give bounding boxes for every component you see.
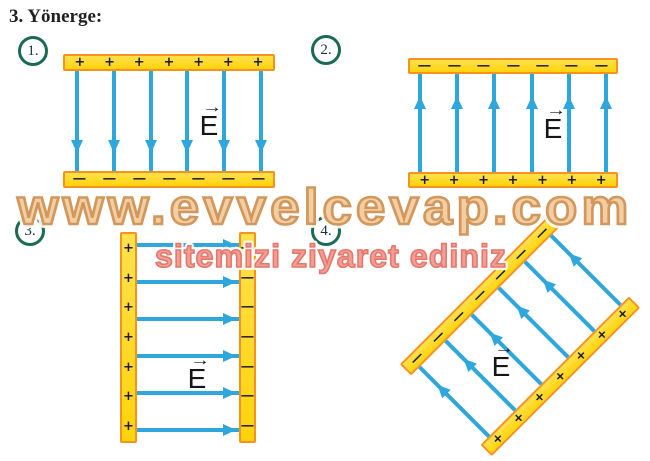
- minus-sign: −: [532, 223, 553, 244]
- page-title: 3. Yönerge:: [9, 6, 102, 28]
- plus-sign: +: [419, 174, 430, 187]
- diagram-2-number-badge: 2.: [311, 35, 341, 65]
- field-line: [530, 74, 534, 172]
- field-arrowhead: [71, 140, 83, 153]
- field-arrowhead: [488, 96, 500, 109]
- plus-sign: +: [566, 174, 577, 187]
- plus-sign: +: [489, 430, 506, 447]
- diagram-4-number: 4.: [320, 223, 331, 240]
- vector-arrow-icon: →: [546, 106, 566, 115]
- charged-plate: +++++++: [120, 232, 137, 443]
- field-line: [149, 71, 153, 171]
- charged-plate: +++++++: [408, 172, 618, 188]
- diagram-2-number: 2.: [320, 42, 331, 59]
- field-line: [455, 74, 459, 172]
- minus-sign: −: [101, 173, 117, 186]
- field-arrowhead: [539, 276, 557, 294]
- charged-plate: −−−−−−−: [63, 171, 275, 188]
- minus-sign: −: [239, 272, 255, 285]
- e-field-label-3: → E: [182, 356, 212, 394]
- minus-sign: −: [564, 60, 580, 73]
- charged-plate: −−−−−−−: [239, 232, 256, 443]
- field-line: [604, 74, 608, 172]
- plus-sign: +: [104, 56, 115, 69]
- field-line: [259, 71, 263, 171]
- field-arrowhead: [223, 276, 236, 288]
- minus-sign: −: [505, 60, 521, 73]
- field-arrowhead: [414, 96, 426, 109]
- minus-sign: −: [446, 60, 462, 73]
- plus-sign: +: [164, 56, 175, 69]
- plus-sign: +: [531, 389, 548, 406]
- minus-sign: −: [407, 348, 428, 369]
- minus-sign: −: [239, 420, 255, 433]
- field-arrowhead: [108, 140, 120, 153]
- field-arrowhead: [255, 140, 267, 153]
- minus-sign: −: [131, 173, 147, 186]
- e-field-label-2: → E: [538, 106, 568, 144]
- plus-sign: +: [123, 331, 134, 344]
- plus-sign: +: [573, 347, 590, 364]
- capacitor-diagram-1: +++++++−−−−−−−: [63, 54, 275, 188]
- charged-plate: −−−−−−−: [408, 58, 618, 74]
- plus-sign: +: [123, 420, 134, 433]
- field-line: [137, 317, 239, 321]
- field-line: [492, 74, 496, 172]
- plus-sign: +: [552, 368, 569, 385]
- field-arrowhead: [223, 239, 236, 251]
- minus-sign: −: [475, 60, 491, 73]
- field-arrowhead: [433, 381, 451, 399]
- plus-sign: +: [593, 326, 610, 343]
- minus-sign: −: [448, 306, 469, 327]
- plus-sign: +: [123, 361, 134, 374]
- minus-sign: −: [239, 331, 255, 344]
- e-field-letter: E: [544, 115, 563, 144]
- field-arrowhead: [451, 96, 463, 109]
- figure-page: 3. Yönerge: 1. 2. 3. 4. +++++++−−−−−−− −…: [0, 0, 650, 461]
- plus-sign: +: [253, 56, 264, 69]
- plus-sign: +: [478, 174, 489, 187]
- minus-sign: −: [490, 265, 511, 286]
- field-line: [75, 71, 79, 171]
- field-line: [137, 428, 239, 432]
- vector-arrow-icon: →: [202, 103, 222, 112]
- field-line: [137, 243, 239, 247]
- plus-sign: +: [74, 56, 85, 69]
- plus-sign: +: [537, 174, 548, 187]
- charged-plate: −−−−−−−: [400, 216, 560, 376]
- diagram-3-number-badge: 3.: [15, 216, 45, 246]
- minus-sign: −: [417, 60, 433, 73]
- plus-sign: +: [123, 301, 134, 314]
- field-line: [418, 74, 422, 172]
- minus-sign: −: [593, 60, 609, 73]
- diagram-3-number: 3.: [24, 223, 35, 240]
- plus-sign: +: [223, 56, 234, 69]
- field-arrowhead: [223, 387, 236, 399]
- plus-sign: +: [596, 174, 607, 187]
- minus-sign: −: [161, 173, 177, 186]
- field-arrowhead: [460, 355, 478, 373]
- plus-sign: +: [510, 409, 527, 426]
- plus-sign: +: [123, 390, 134, 403]
- field-arrowhead: [181, 140, 193, 153]
- plus-sign: +: [449, 174, 460, 187]
- vector-arrow-icon: →: [494, 344, 514, 353]
- minus-sign: −: [220, 173, 236, 186]
- minus-sign: −: [250, 173, 266, 186]
- vector-arrow-icon: →: [190, 356, 210, 365]
- capacitor-diagram-2: −−−−−−−+++++++: [408, 58, 618, 188]
- field-arrowhead: [223, 313, 236, 325]
- diagram-4-number-badge: 4.: [311, 216, 341, 246]
- field-arrowhead: [600, 96, 612, 109]
- plus-sign: +: [614, 305, 631, 322]
- plus-sign: +: [123, 242, 134, 255]
- field-arrowhead: [223, 424, 236, 436]
- field-arrowhead: [565, 249, 583, 267]
- minus-sign: −: [534, 60, 550, 73]
- field-line: [112, 71, 116, 171]
- plus-sign: +: [508, 174, 519, 187]
- e-field-label-4: → E: [486, 344, 516, 382]
- minus-sign: −: [239, 361, 255, 374]
- field-arrowhead: [145, 140, 157, 153]
- e-field-letter: E: [188, 365, 207, 394]
- e-field-letter: E: [200, 112, 219, 141]
- capacitor-diagram-3: +++++++−−−−−−−: [120, 232, 256, 443]
- charged-plate: +++++++: [63, 54, 275, 71]
- minus-sign: −: [239, 301, 255, 314]
- minus-sign: −: [428, 327, 449, 348]
- e-field-label-1: → E: [194, 103, 224, 141]
- minus-sign: −: [511, 244, 532, 265]
- minus-sign: −: [469, 285, 490, 306]
- capacitor-diagram-4: −−−−−−−+++++++: [400, 216, 640, 456]
- field-arrowhead: [512, 302, 530, 320]
- field-arrowhead: [526, 96, 538, 109]
- field-arrowhead: [218, 140, 230, 153]
- minus-sign: −: [239, 390, 255, 403]
- field-arrowhead: [223, 350, 236, 362]
- minus-sign: −: [72, 173, 88, 186]
- e-field-letter: E: [492, 353, 511, 382]
- diagram-1-number-badge: 1.: [18, 36, 48, 66]
- minus-sign: −: [239, 242, 255, 255]
- plus-sign: +: [193, 56, 204, 69]
- field-line: [185, 71, 189, 171]
- plus-sign: +: [134, 56, 145, 69]
- diagram-1-number: 1.: [27, 43, 38, 60]
- minus-sign: −: [190, 173, 206, 186]
- field-line: [137, 280, 239, 284]
- plus-sign: +: [123, 272, 134, 285]
